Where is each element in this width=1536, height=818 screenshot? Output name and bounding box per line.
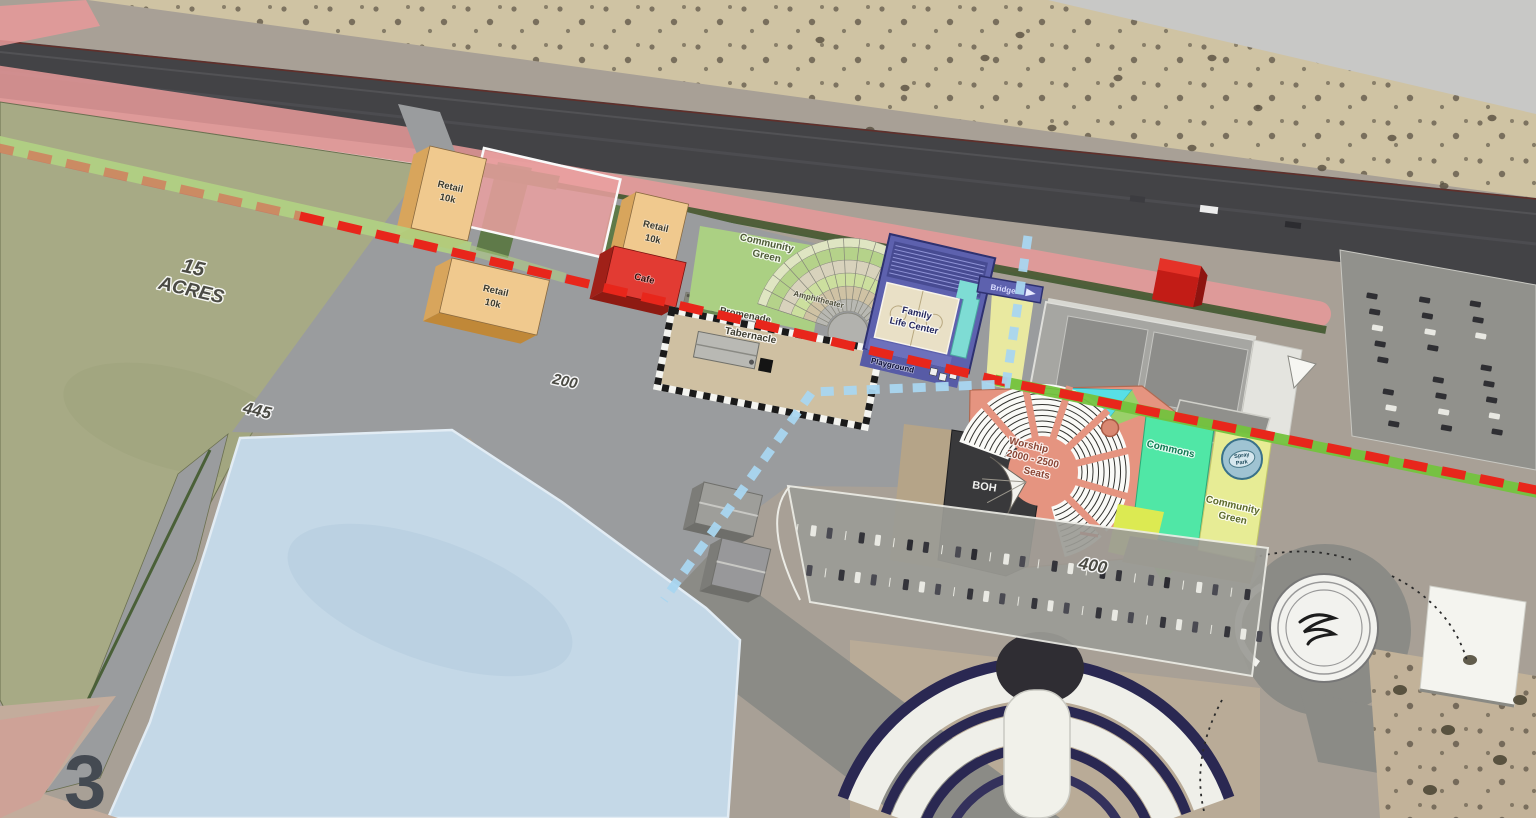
site-plan-canvas: Retail 10k Retail 10k Retail 10k Cafe Co… [0,0,1536,818]
spray-park-badge-icon: Spray Park [1222,439,1262,479]
church-central-hall [1004,690,1070,818]
play-equipment-icon [929,368,937,376]
plaza-kiosk [758,358,773,373]
sheet-number: 3 [64,740,106,818]
parking-lot-east [1340,250,1536,470]
site-plan-page: Retail 10k Retail 10k Retail 10k Cafe Co… [0,0,1536,818]
pink-strip-far [0,0,100,46]
play-equipment-icon [938,373,946,381]
worship-oculus [1102,420,1119,437]
white-building-aerial [1420,586,1526,706]
